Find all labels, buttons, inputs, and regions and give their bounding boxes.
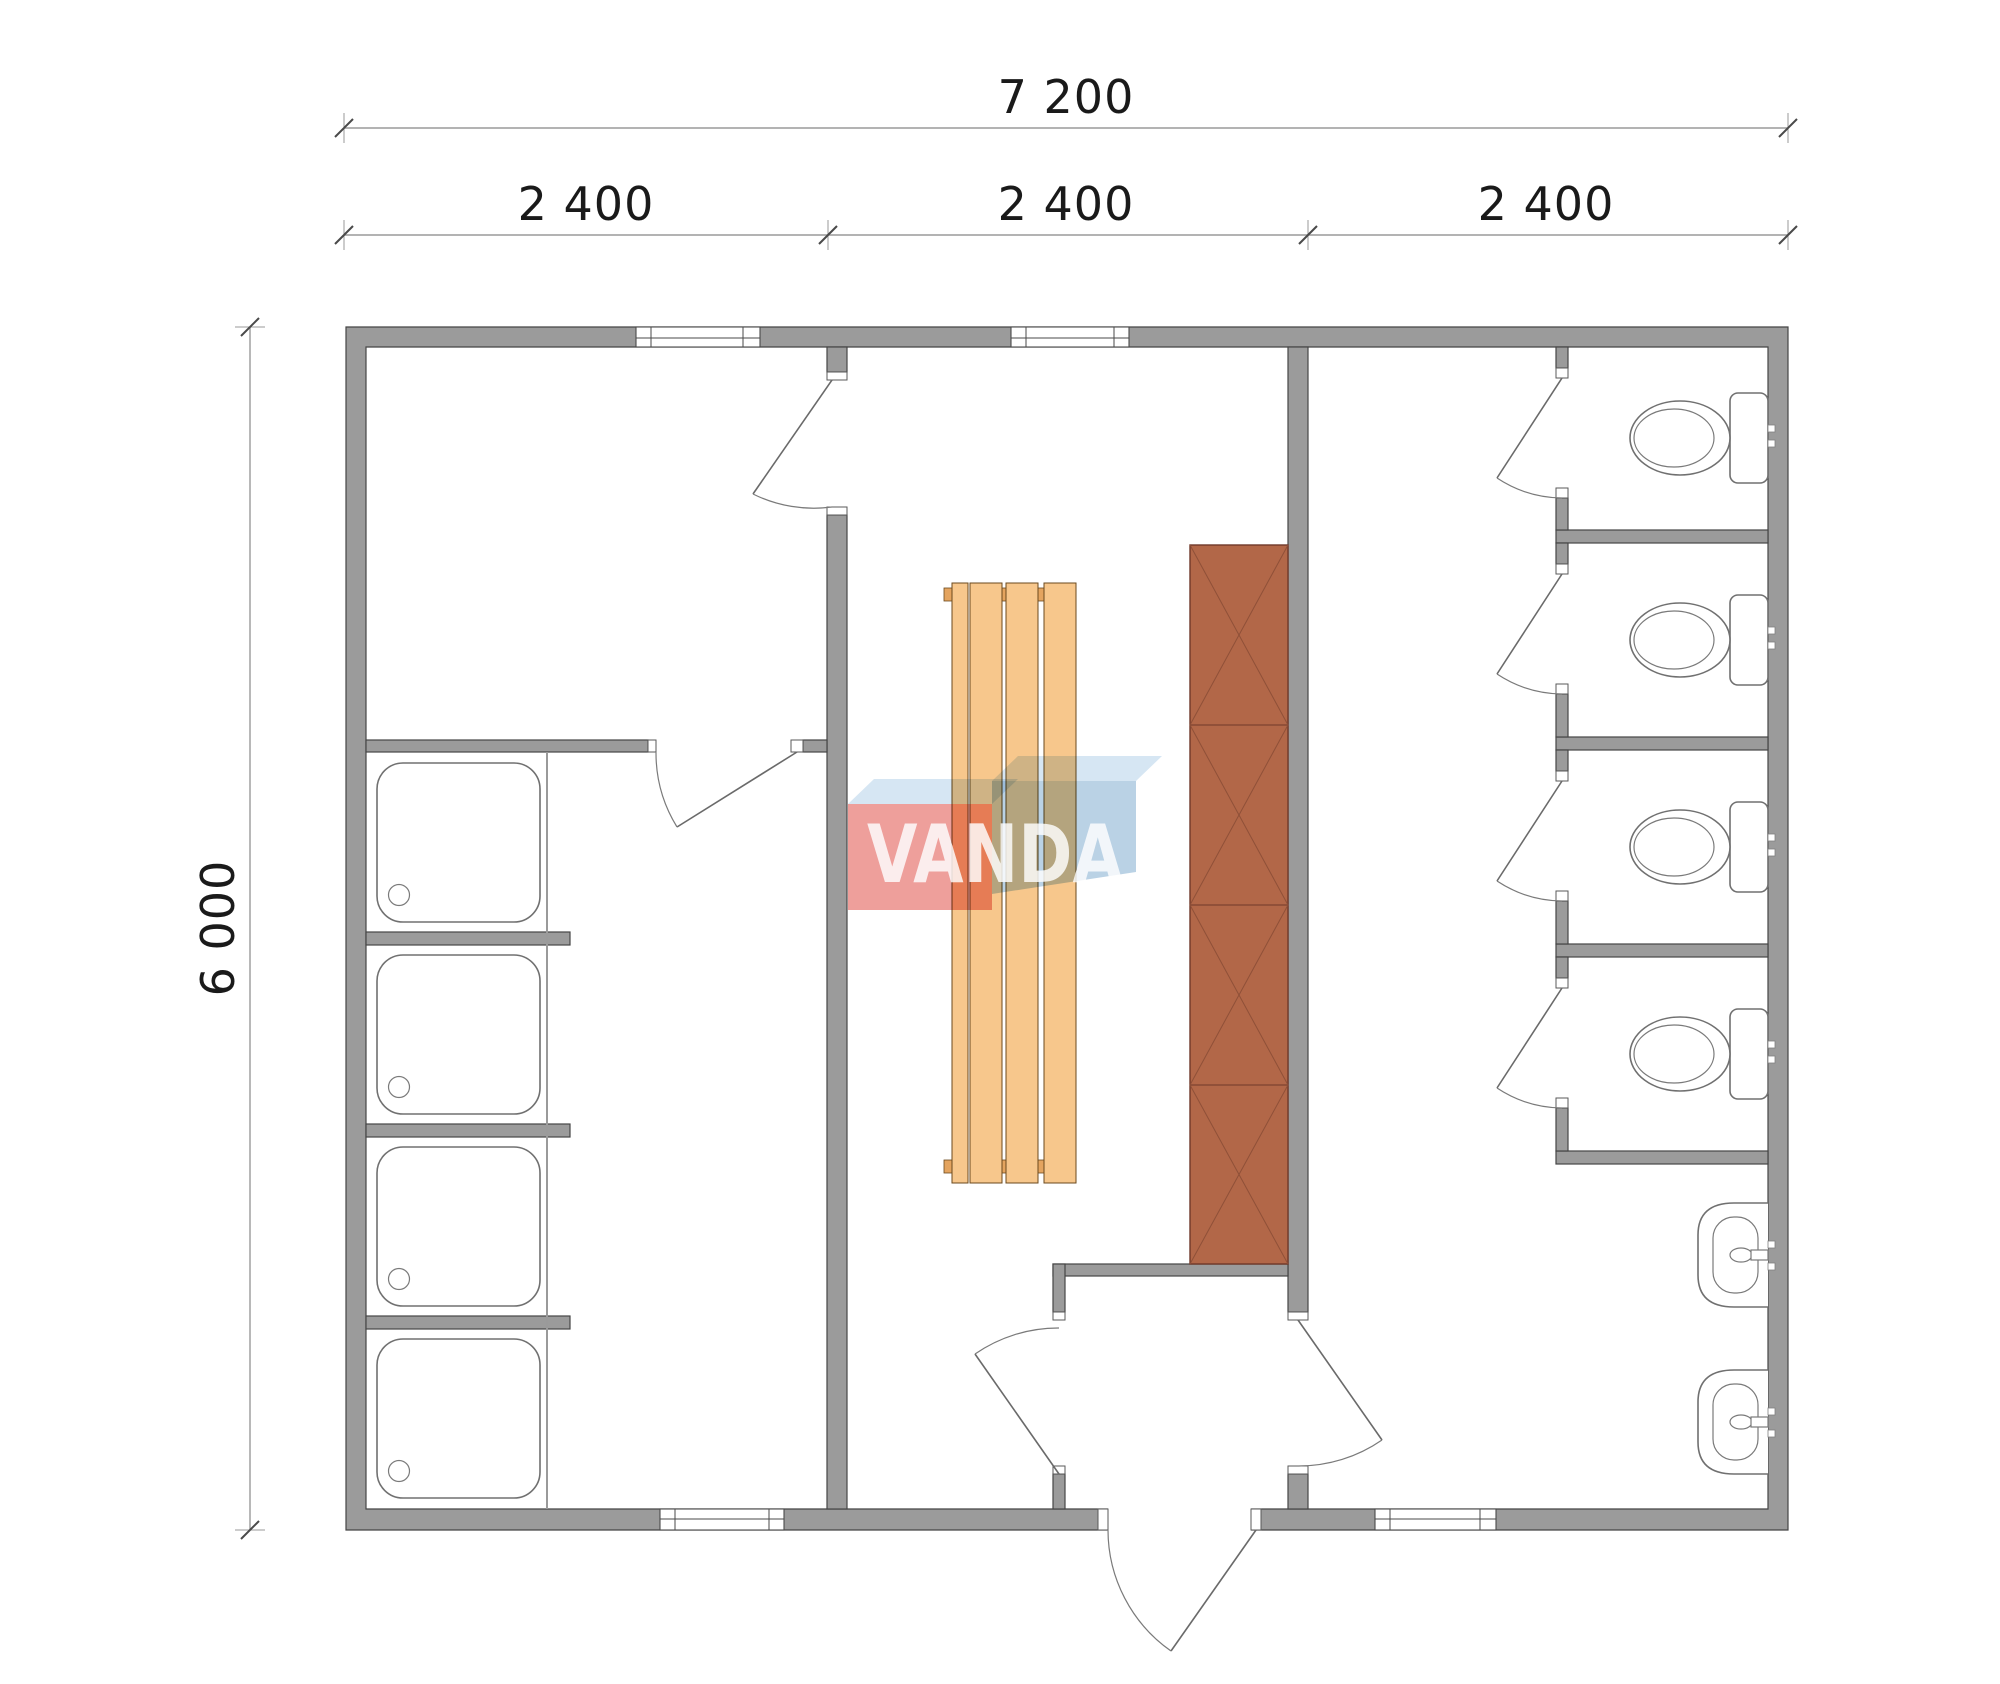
bench-slat: [1044, 583, 1076, 1183]
dim-label-total-height: 6 000: [191, 860, 245, 997]
window-bottom-right: [1375, 1509, 1496, 1530]
vestibule-top-wall: [1053, 1264, 1288, 1276]
stall-front-stub: [1556, 694, 1568, 737]
shower-drain: [389, 1077, 410, 1098]
window-bottom-left: [660, 1509, 784, 1530]
stall-front-stub: [1556, 347, 1568, 368]
sink-1: [1698, 1203, 1775, 1307]
shower-room-wall-stub: [803, 740, 827, 752]
shower-divider-wall: [366, 1124, 570, 1137]
window-top-middle: [1011, 327, 1129, 347]
interior-wall-middle-right-stub: [1288, 1474, 1308, 1509]
vestibule-left-wall: [1053, 1264, 1065, 1312]
stall-front-stub: [1556, 498, 1568, 530]
toilet-stall-partition: [1556, 1151, 1768, 1164]
floor-plan-canvas: 7 200 2 400 2 400 2 400: [0, 0, 2000, 1684]
bench: [944, 583, 1076, 1183]
interior-wall-left-middle-stub: [827, 347, 847, 372]
bench-slat: [970, 583, 1002, 1183]
dim-label-total-width: 7 200: [998, 70, 1135, 124]
stall-front-stub: [1556, 750, 1568, 771]
shower-drain: [389, 1461, 410, 1482]
interior-wall-middle-right: [1288, 347, 1308, 1312]
bench-slat: [952, 583, 968, 1183]
bench-slat: [1006, 583, 1038, 1183]
shower-tray-2: [377, 955, 540, 1114]
faucet: [1730, 1248, 1752, 1262]
interior-wall-left-middle: [827, 515, 847, 1509]
toilet-stall-partition: [1556, 944, 1768, 957]
shower-drain: [389, 885, 410, 906]
shower-divider-wall: [366, 1316, 570, 1329]
dim-label-module-1: 2 400: [518, 177, 655, 231]
sink-2: [1698, 1370, 1775, 1474]
toilet-stall-partition: [1556, 530, 1768, 543]
vestibule-left-wall-stub: [1053, 1474, 1065, 1509]
shower-drain: [389, 1269, 410, 1290]
stall-front-stub: [1556, 543, 1568, 564]
shower-tray-1: [377, 763, 540, 922]
shower-tray-3: [377, 1147, 540, 1306]
shower-room-wall: [366, 740, 648, 752]
stall-front-stub: [1556, 901, 1568, 944]
stall-front-stub: [1556, 1108, 1568, 1151]
faucet: [1730, 1415, 1752, 1429]
dim-label-module-3: 2 400: [1478, 177, 1615, 231]
shower-tray-4: [377, 1339, 540, 1498]
dim-label-module-2: 2 400: [998, 177, 1135, 231]
locker-cabinet: [1190, 545, 1288, 1264]
window-top-left: [636, 327, 760, 347]
shower-divider-wall: [366, 932, 570, 945]
stall-front-stub: [1556, 957, 1568, 978]
toilet-stall-partition: [1556, 737, 1768, 750]
